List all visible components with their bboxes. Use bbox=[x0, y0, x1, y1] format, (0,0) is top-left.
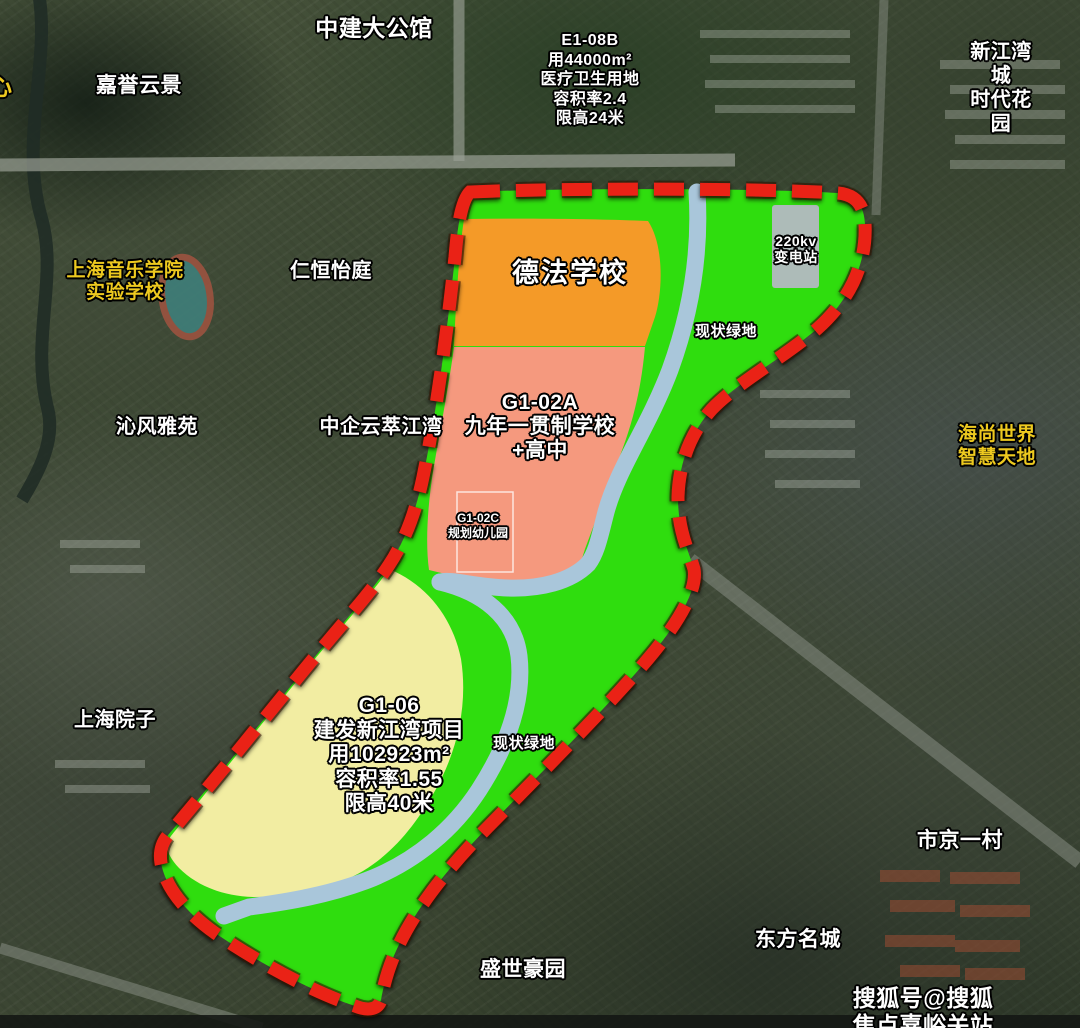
label-zhongjian-da-gongguan: 中建大公馆 bbox=[315, 15, 433, 42]
label-zhongqi-yuncui: 中企云萃江湾 bbox=[320, 416, 443, 440]
label-dongfang-mingcheng: 东方名城 bbox=[755, 928, 841, 953]
road-diagonal-right bbox=[690, 560, 1080, 862]
label-green-upper: 现状绿地 bbox=[695, 323, 757, 341]
label-renheng-yiting: 仁恒怡庭 bbox=[290, 260, 372, 284]
satellite-map-overlay bbox=[0, 0, 1080, 1028]
label-shanghai-yuanzi: 上海院子 bbox=[74, 709, 156, 733]
building-rows-red-roof bbox=[880, 870, 1030, 980]
label-defa-school: 德法学校 bbox=[512, 258, 628, 290]
label-green-lower: 现状绿地 bbox=[493, 735, 555, 753]
road-right-top bbox=[876, 0, 884, 215]
label-partial-left: 心 bbox=[0, 74, 13, 102]
label-qinfeng-yayuan: 沁风雅苑 bbox=[116, 416, 198, 440]
label-conservatory-school: 上海音乐学院 实验学校 bbox=[66, 260, 183, 304]
label-substation: 220kv 变电站 bbox=[774, 233, 818, 265]
label-haishang-world: 海尚世界 智慧天地 bbox=[958, 423, 1036, 469]
label-g1-02a: G1-02A 九年一贯制学校 +高中 bbox=[465, 391, 616, 463]
label-jiayu-yunjing: 嘉誉云景 bbox=[96, 74, 182, 99]
label-watermark: 搜狐号@搜狐焦点嘉峪关站 bbox=[845, 985, 1002, 1028]
label-g1-06: G1-06 建发新江湾项目 用102923m² 容积率1.55 限高40米 bbox=[314, 694, 465, 817]
planning-map-image: 中建大公馆 嘉誉云景 E1-08B 用44000m² 医疗卫生用地 容积率2.4… bbox=[0, 0, 1080, 1028]
label-g1-02c: G1-02C 规划幼儿园 bbox=[448, 511, 508, 541]
canal bbox=[22, 0, 50, 500]
label-xinjiangwan-times-garden: 新江湾城 时代花园 bbox=[962, 40, 1041, 136]
label-shijing-yicun: 市京一村 bbox=[917, 829, 1003, 854]
label-shengshi-haoyuan: 盛世豪园 bbox=[480, 958, 566, 983]
label-parcel-e1-08b: E1-08B 用44000m² 医疗卫生用地 容积率2.4 限高24米 bbox=[540, 31, 639, 129]
road-top bbox=[0, 160, 735, 165]
